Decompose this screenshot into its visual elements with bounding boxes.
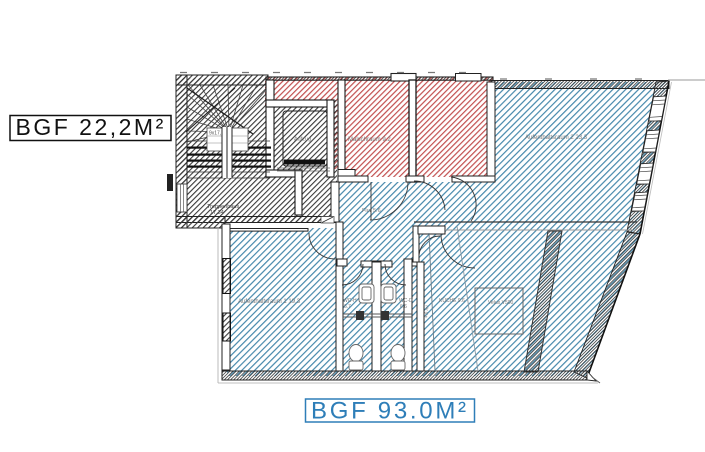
svg-text:6.6: 6.6 — [400, 304, 407, 310]
svg-text:Malschraum 9.2: Malschraum 9.2 — [348, 137, 391, 143]
svg-text:BGF 93.0M²: BGF 93.0M² — [311, 398, 469, 425]
svg-text:Velux V500: Velux V500 — [488, 300, 514, 306]
svg-text:KÜCHE 9.6: KÜCHE 9.6 — [439, 297, 465, 304]
svg-text:BGF 22,2M²: BGF 22,2M² — [16, 114, 166, 140]
svg-text:6.7: 6.7 — [344, 304, 351, 310]
svg-text:17.34: 17.34 — [210, 210, 224, 216]
svg-text:Aufenthaltsraum 1 19.3: Aufenthaltsraum 1 19.3 — [238, 299, 301, 305]
svg-text:Aufenthaltsraum 2 23.3: Aufenthaltsraum 2 23.3 — [525, 135, 588, 141]
svg-text:Aufzug: Aufzug — [294, 137, 311, 143]
svg-text:Flur 5.6: Flur 5.6 — [362, 208, 381, 214]
